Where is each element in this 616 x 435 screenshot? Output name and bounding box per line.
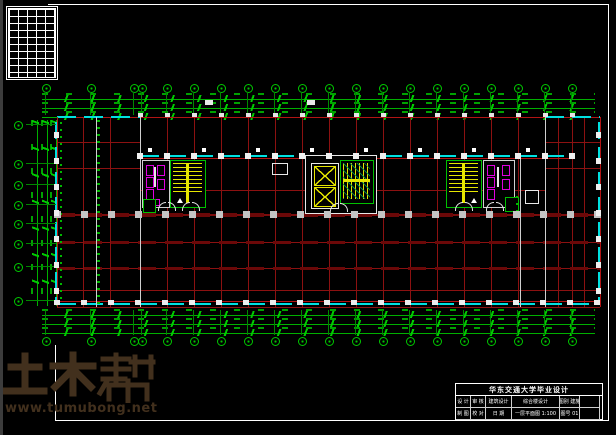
title-block-header: 华东交通大学毕业设计 bbox=[456, 384, 602, 396]
axis-bubble-top bbox=[298, 84, 307, 93]
column-square bbox=[418, 148, 422, 152]
axis-leader bbox=[436, 310, 437, 335]
column-square bbox=[596, 210, 601, 216]
axis-bubble-left bbox=[14, 220, 23, 229]
column-square bbox=[489, 113, 494, 117]
axis-leader bbox=[328, 92, 329, 115]
column-square bbox=[189, 211, 196, 218]
axis-leader bbox=[45, 310, 46, 335]
column-square bbox=[191, 153, 197, 159]
left-dimension-chain-2 bbox=[41, 120, 49, 306]
axis-leader bbox=[90, 92, 91, 115]
axis-leader bbox=[274, 92, 275, 115]
axis-leader bbox=[26, 300, 56, 301]
axis-leader bbox=[409, 310, 410, 335]
column-square bbox=[351, 211, 358, 218]
axis-leader bbox=[26, 223, 56, 224]
cad-viewport: www.tumubong.net 华东交通大学毕业设计 设 计 审 核 建筑设计… bbox=[0, 0, 616, 435]
column-square bbox=[543, 113, 548, 117]
column-square bbox=[81, 300, 87, 305]
grid-line bbox=[584, 117, 585, 307]
axis-leader bbox=[571, 310, 572, 335]
axis-bubble-top bbox=[352, 84, 361, 93]
axis-bubble-top bbox=[487, 84, 496, 93]
axis-leader bbox=[133, 92, 134, 115]
double-door-swing bbox=[330, 203, 348, 212]
column-square bbox=[434, 153, 440, 159]
axis-bubble-bottom bbox=[42, 337, 51, 346]
bottom-dimension-chain-3 bbox=[42, 327, 595, 335]
column-square bbox=[299, 153, 305, 159]
column-square bbox=[459, 211, 466, 218]
axis-bubble-top bbox=[325, 84, 334, 93]
axis-leader bbox=[45, 92, 46, 115]
axis-leader bbox=[355, 310, 356, 335]
tb-cell: 日 期 bbox=[486, 408, 512, 420]
column-square bbox=[243, 211, 250, 218]
bottom-dimension-chain-2 bbox=[42, 318, 595, 326]
axis-bubble-left bbox=[14, 297, 23, 306]
stair-center bbox=[340, 160, 374, 204]
column-square bbox=[326, 153, 332, 159]
tb-cell: 图别 建施 bbox=[560, 396, 580, 408]
axis-bubble-bottom bbox=[514, 337, 523, 346]
axis-leader bbox=[463, 92, 464, 115]
axis-bubble-left bbox=[14, 160, 23, 169]
toilet-fixture bbox=[502, 179, 510, 190]
tb-cell: 设 计 bbox=[456, 396, 471, 408]
axis-bubble-bottom bbox=[460, 337, 469, 346]
toilet-fixture bbox=[146, 165, 154, 176]
column-square bbox=[162, 211, 169, 218]
tb-cell: 一层平面图 1:100 bbox=[512, 408, 560, 420]
axis-leader bbox=[463, 310, 464, 335]
column-square bbox=[108, 211, 115, 218]
axis-bubble-left bbox=[14, 201, 23, 210]
stair-divider bbox=[344, 179, 370, 182]
column-square bbox=[192, 113, 197, 117]
column-square bbox=[245, 153, 251, 159]
south-wall-inner bbox=[57, 307, 600, 308]
toilet-fixture bbox=[487, 177, 495, 188]
column-square bbox=[596, 236, 601, 242]
tag bbox=[307, 100, 315, 105]
axis-leader bbox=[409, 92, 410, 115]
column-square bbox=[54, 184, 59, 190]
column-square bbox=[218, 153, 224, 159]
column-square bbox=[540, 211, 547, 218]
sheet-frame-right bbox=[608, 4, 609, 421]
axis-bubble-bottom bbox=[568, 337, 577, 346]
column-square bbox=[461, 153, 467, 159]
column-square bbox=[135, 211, 142, 218]
axis-leader bbox=[517, 92, 518, 115]
axis-leader bbox=[247, 92, 248, 115]
axis-leader bbox=[247, 310, 248, 335]
axis-leader bbox=[193, 310, 194, 335]
column-square bbox=[596, 184, 601, 190]
column-square bbox=[108, 300, 114, 305]
fixture bbox=[272, 163, 288, 175]
axis-bubble-bottom bbox=[406, 337, 415, 346]
beam-dashes bbox=[57, 267, 600, 270]
column-square bbox=[405, 211, 412, 218]
partition-bit bbox=[497, 167, 499, 187]
axis-bubble-top bbox=[514, 84, 523, 93]
column-square bbox=[486, 300, 492, 305]
toilet-fixture bbox=[146, 177, 154, 188]
column-square bbox=[596, 132, 601, 138]
axis-leader bbox=[274, 310, 275, 335]
column-square bbox=[407, 153, 413, 159]
elevator-cab bbox=[314, 166, 336, 186]
column-square bbox=[459, 300, 465, 305]
column-square bbox=[596, 288, 601, 294]
axis-leader bbox=[490, 310, 491, 335]
grid-line bbox=[558, 117, 559, 307]
axis-leader bbox=[220, 92, 221, 115]
axis-bubble-top bbox=[163, 84, 172, 93]
column-square bbox=[270, 211, 277, 218]
bottom-dimension-chain-1 bbox=[42, 309, 595, 317]
axis-leader bbox=[26, 124, 56, 125]
column-square bbox=[526, 148, 530, 152]
axis-bubble-top bbox=[190, 84, 199, 93]
tag bbox=[205, 100, 213, 105]
axis-bubble-bottom bbox=[352, 337, 361, 346]
axis-leader bbox=[544, 310, 545, 335]
axis-bubble-left bbox=[14, 263, 23, 272]
axis-bubble-top bbox=[379, 84, 388, 93]
column-square bbox=[327, 113, 332, 117]
axis-leader bbox=[141, 310, 142, 335]
column-square bbox=[378, 211, 385, 218]
column-square bbox=[462, 113, 467, 117]
axis-leader bbox=[26, 243, 56, 244]
column-square bbox=[513, 300, 519, 305]
stair-east bbox=[446, 160, 482, 208]
axis-leader bbox=[193, 92, 194, 115]
axis-leader bbox=[90, 310, 91, 335]
column-square bbox=[516, 113, 521, 117]
column-square bbox=[54, 262, 59, 268]
column-square bbox=[596, 158, 601, 164]
partition-wall bbox=[520, 158, 521, 307]
column-square bbox=[162, 300, 168, 305]
column-square bbox=[351, 300, 357, 305]
sheet-frame-bottom bbox=[55, 420, 609, 421]
axis-bubble-bottom bbox=[163, 337, 172, 346]
double-door-swing bbox=[182, 202, 200, 211]
axis-bubble-bottom bbox=[138, 337, 147, 346]
axis-leader bbox=[571, 92, 572, 115]
column-square bbox=[164, 153, 170, 159]
axis-bubble-top bbox=[271, 84, 280, 93]
title-block: 华东交通大学毕业设计 设 计 审 核 建筑设计 综合楼设计 图别 建施 制 图 … bbox=[455, 383, 603, 420]
axis-leader bbox=[220, 310, 221, 335]
tb-cell: 审 核 bbox=[471, 396, 486, 408]
axis-leader bbox=[141, 92, 142, 115]
axis-leader bbox=[355, 92, 356, 115]
column-square bbox=[189, 300, 195, 305]
axis-bubble-top bbox=[244, 84, 253, 93]
axis-bubble-left bbox=[14, 240, 23, 249]
axis-bubble-top bbox=[541, 84, 550, 93]
axis-bubble-bottom bbox=[433, 337, 442, 346]
grid-line bbox=[545, 142, 600, 143]
stair-west bbox=[170, 160, 206, 208]
sheet-frame-top bbox=[48, 4, 609, 5]
toilet-fixture bbox=[157, 165, 165, 176]
column-square bbox=[310, 148, 314, 152]
column-square bbox=[324, 300, 330, 305]
column-square bbox=[165, 113, 170, 117]
column-square bbox=[354, 113, 359, 117]
door-frame bbox=[143, 199, 156, 213]
column-square bbox=[596, 262, 601, 268]
column-square bbox=[138, 113, 143, 117]
axis-bubble-top bbox=[138, 84, 147, 93]
column-square bbox=[569, 153, 575, 159]
axis-bubble-bottom bbox=[541, 337, 550, 346]
axis-leader bbox=[26, 204, 56, 205]
column-square bbox=[202, 148, 206, 152]
column-square bbox=[380, 153, 386, 159]
axis-bubble-left bbox=[14, 121, 23, 130]
axis-leader bbox=[490, 92, 491, 115]
column-square bbox=[488, 153, 494, 159]
axis-bubble-bottom bbox=[217, 337, 226, 346]
grid-line bbox=[57, 290, 600, 291]
column-square bbox=[364, 148, 368, 152]
column-square bbox=[54, 132, 59, 138]
column-square bbox=[472, 148, 476, 152]
column-square bbox=[148, 148, 152, 152]
tb-cell: 校 对 bbox=[471, 408, 486, 420]
left-dimension-chain-1 bbox=[31, 120, 39, 306]
column-square bbox=[297, 300, 303, 305]
axis-bubble-top bbox=[42, 84, 51, 93]
column-square bbox=[435, 113, 440, 117]
watermark-url: www.tumubong.net bbox=[5, 401, 157, 416]
column-square bbox=[54, 288, 59, 294]
grid-line bbox=[545, 168, 600, 169]
fixture bbox=[525, 190, 539, 204]
axis-leader bbox=[166, 310, 167, 335]
column-square bbox=[353, 153, 359, 159]
column-square bbox=[567, 211, 574, 218]
axis-bubble-bottom bbox=[244, 337, 253, 346]
column-square bbox=[137, 153, 143, 159]
toilet-fixture bbox=[502, 165, 510, 176]
axis-bubble-top bbox=[460, 84, 469, 93]
toilet-fixture bbox=[157, 179, 165, 190]
stair-divider bbox=[186, 163, 189, 203]
column-square bbox=[246, 113, 251, 117]
watermark-logo bbox=[3, 349, 163, 403]
axis-leader bbox=[382, 92, 383, 115]
column-square bbox=[324, 211, 331, 218]
axis-bubble-bottom bbox=[379, 337, 388, 346]
column-square bbox=[216, 300, 222, 305]
tb-cell bbox=[580, 408, 600, 420]
column-square bbox=[219, 113, 224, 117]
axis-bubble-top bbox=[217, 84, 226, 93]
double-door-swing bbox=[158, 202, 176, 211]
axis-leader bbox=[166, 92, 167, 115]
axis-bubble-bottom bbox=[271, 337, 280, 346]
axis-leader bbox=[436, 92, 437, 115]
axis-bubble-bottom bbox=[298, 337, 307, 346]
axis-leader bbox=[133, 310, 134, 335]
column-square bbox=[272, 153, 278, 159]
axis-leader bbox=[26, 266, 56, 267]
axis-leader bbox=[517, 310, 518, 335]
toilet-fixture bbox=[487, 165, 495, 176]
tb-cell: 制 图 bbox=[456, 408, 471, 420]
column-square bbox=[486, 211, 493, 218]
column-square bbox=[273, 113, 278, 117]
toilet-fixture bbox=[487, 189, 495, 200]
column-square bbox=[378, 300, 384, 305]
top-dimension-chain-2 bbox=[42, 102, 595, 110]
axis-bubble-bottom bbox=[87, 337, 96, 346]
column-square bbox=[570, 113, 575, 117]
column-square bbox=[513, 211, 520, 218]
column-square bbox=[300, 113, 305, 117]
column-square bbox=[405, 300, 411, 305]
column-square bbox=[408, 113, 413, 117]
axis-leader bbox=[26, 184, 56, 185]
tb-cell: 图号 01 bbox=[560, 408, 580, 420]
column-square bbox=[515, 153, 521, 159]
tb-cell: 建筑设计 bbox=[486, 396, 512, 408]
axis-bubble-top bbox=[406, 84, 415, 93]
column-square bbox=[54, 158, 59, 164]
column-square bbox=[54, 236, 59, 242]
axis-leader bbox=[544, 92, 545, 115]
axis-leader bbox=[382, 310, 383, 335]
top-dimension-chain-1 bbox=[42, 93, 595, 101]
partition-hatch bbox=[97, 120, 100, 305]
column-square bbox=[381, 113, 386, 117]
column-square bbox=[135, 300, 141, 305]
column-square bbox=[256, 148, 260, 152]
partition-bit bbox=[154, 167, 156, 187]
axis-bubble-bottom bbox=[325, 337, 334, 346]
column-square bbox=[540, 300, 546, 305]
column-square bbox=[594, 300, 600, 305]
column-square bbox=[297, 211, 304, 218]
column-square bbox=[567, 300, 573, 305]
axis-bubble-bottom bbox=[190, 337, 199, 346]
column-square bbox=[432, 300, 438, 305]
axis-leader bbox=[328, 310, 329, 335]
double-door-swing bbox=[455, 202, 473, 211]
double-door-swing bbox=[486, 202, 504, 211]
beam-dashes bbox=[57, 241, 600, 244]
tb-cell bbox=[580, 396, 600, 408]
column-square bbox=[54, 300, 60, 305]
axis-bubble-top bbox=[568, 84, 577, 93]
door-hatch bbox=[516, 196, 518, 212]
column-square bbox=[54, 210, 59, 216]
column-square bbox=[243, 300, 249, 305]
tb-cell: 综合楼设计 bbox=[512, 396, 560, 408]
schedule-table bbox=[8, 8, 56, 78]
column-square bbox=[432, 211, 439, 218]
axis-leader bbox=[301, 310, 302, 335]
column-square bbox=[216, 211, 223, 218]
column-square bbox=[542, 153, 548, 159]
axis-leader bbox=[301, 92, 302, 115]
axis-leader bbox=[26, 163, 56, 164]
column-square bbox=[270, 300, 276, 305]
axis-bubble-top bbox=[433, 84, 442, 93]
axis-bubble-left bbox=[14, 181, 23, 190]
axis-bubble-bottom bbox=[487, 337, 496, 346]
stair-divider bbox=[462, 163, 465, 203]
column-square bbox=[81, 211, 88, 218]
north-window-left bbox=[57, 116, 140, 118]
axis-bubble-top bbox=[87, 84, 96, 93]
